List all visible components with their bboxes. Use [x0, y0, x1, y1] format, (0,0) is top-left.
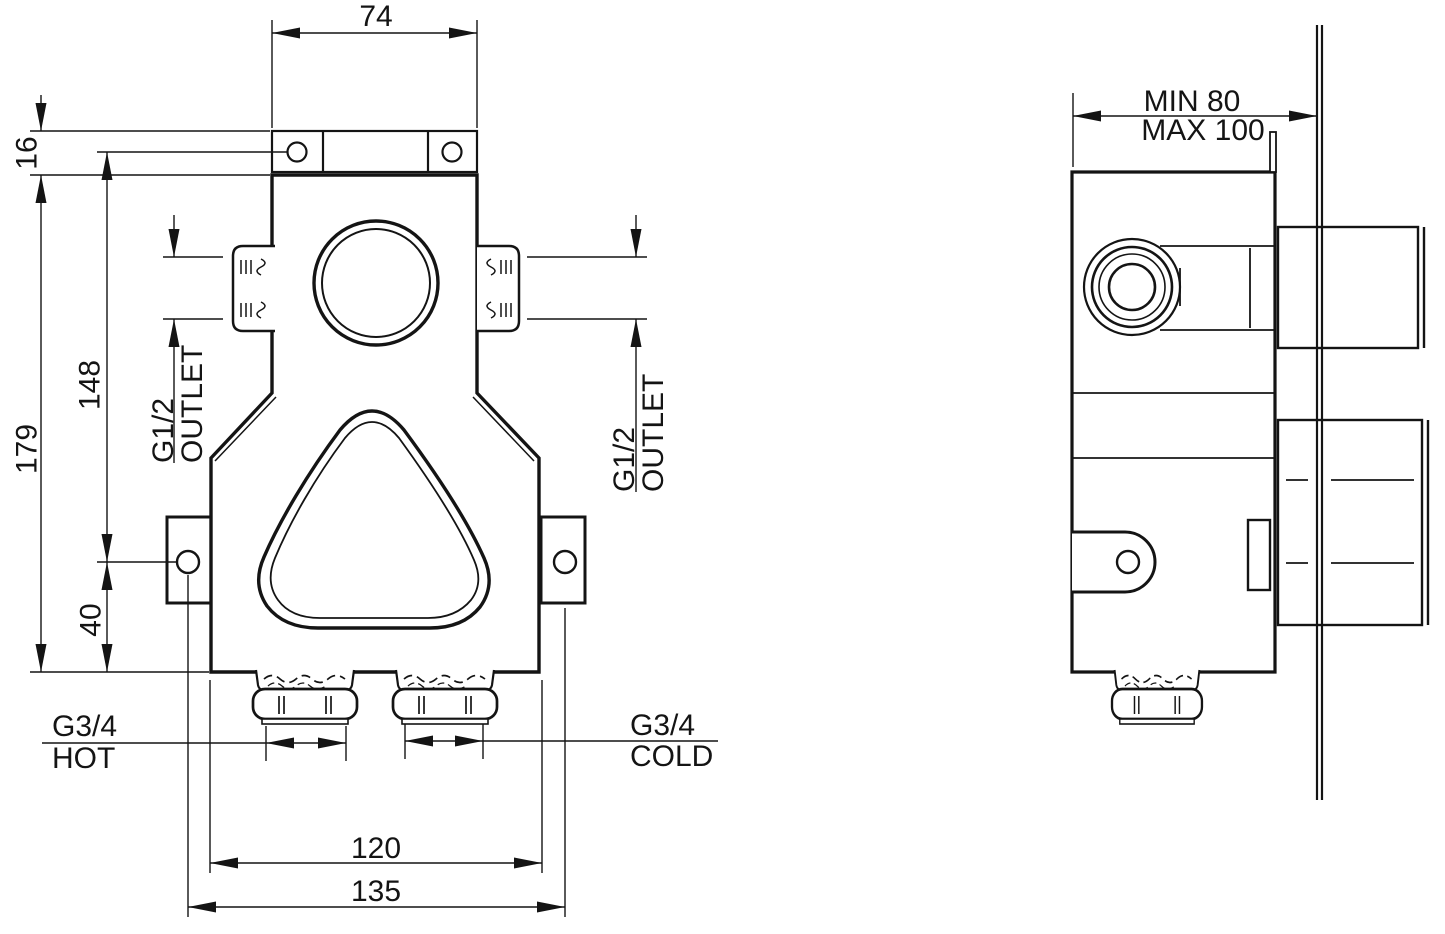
dim-16-label: 16	[11, 136, 44, 169]
valve-installation-drawing: 74 16 179 148 40 120 135 G1/2 OUTLET G1/…	[0, 0, 1445, 934]
inlet-nut-hot	[253, 670, 357, 724]
outlet-left-label: OUTLET	[176, 345, 209, 463]
outlet-right-label: OUTLET	[637, 374, 670, 492]
flange-plate-edge	[1270, 132, 1276, 172]
inlet-cold-thread-label: G3/4	[630, 709, 695, 742]
front-view	[167, 131, 585, 724]
fixing-tab-right	[541, 517, 585, 603]
inlet-nut-side	[1112, 670, 1202, 724]
dim-179-label: 179	[11, 424, 44, 474]
valve-body-side-outline	[1072, 172, 1275, 672]
dim-135-label: 135	[351, 875, 401, 908]
dim-120-label: 120	[351, 832, 401, 865]
outlet-connector-left	[233, 246, 275, 331]
inlet-hot-label: HOT	[52, 742, 115, 775]
dim-40-label: 40	[75, 603, 108, 636]
depth-max-label: MAX 100	[1141, 114, 1264, 147]
trim-box-bottom	[1278, 420, 1422, 625]
dim-148-label: 148	[74, 360, 107, 410]
dim-74-label: 74	[359, 0, 392, 33]
fixing-tab-left	[167, 517, 211, 603]
inlet-hot-thread-label: G3/4	[52, 710, 117, 743]
inlet-cold-label: COLD	[630, 740, 713, 773]
inlet-nut-cold	[393, 670, 497, 724]
mounting-flange	[272, 131, 477, 172]
technical-drawing-page: 74 16 179 148 40 120 135 G1/2 OUTLET G1/…	[0, 0, 1445, 934]
outlet-connector-right	[477, 246, 519, 331]
fixing-bracket-side	[1072, 532, 1155, 592]
trim-box-top	[1278, 227, 1418, 348]
front-face-lug	[1248, 520, 1270, 590]
